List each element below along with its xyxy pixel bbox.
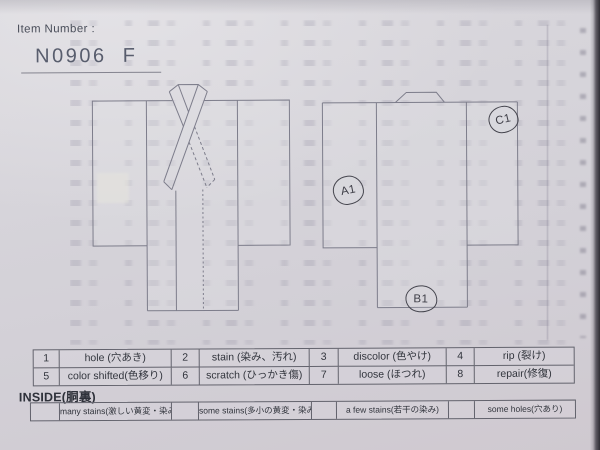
inside-checkbox-cell: [449, 401, 475, 418]
inside-option-cell: many stains(激しい黄変・染み): [60, 403, 172, 421]
defect-label-cell: rip (裂け): [475, 348, 574, 367]
photo-top-shade: [0, 0, 600, 14]
defect-num-cell: 4: [447, 348, 475, 366]
defect-label-cell: repair(修復): [475, 366, 574, 384]
defect-code-table: 1 hole (穴あき) 2 stain (染み、汚れ) 3 discolor …: [33, 347, 575, 387]
defect-label-cell: scratch (ひっかき傷): [200, 367, 310, 385]
defect-num-cell: 2: [172, 350, 200, 368]
defect-num-cell: 7: [310, 367, 339, 384]
defect-num-cell: 3: [310, 349, 339, 367]
inside-checkbox-cell: [172, 403, 199, 420]
inside-option-cell: a few stains(若干の染み): [337, 401, 449, 419]
defect-label-cell: loose (ほつれ): [339, 366, 447, 384]
marker-b1-label: B1: [414, 293, 429, 305]
defect-num-cell: 8: [447, 366, 475, 383]
inside-checkbox-cell: [312, 402, 337, 419]
inside-option-cell: some stains(多小の黄変・染み): [199, 402, 312, 420]
inside-condition-table: many stains(激しい黄変・染み) some stains(多小の黄変・…: [30, 400, 576, 422]
inside-option-cell: some holes(穴あり): [475, 401, 575, 419]
marker-a1-label: A1: [340, 183, 357, 198]
defect-num-cell: 1: [34, 350, 60, 368]
photo-right-edge: [590, 0, 600, 450]
defect-num-cell: 6: [172, 368, 200, 385]
defect-label-cell: color shifted(色移り): [60, 368, 172, 386]
inside-checkbox-cell: [31, 403, 60, 420]
defect-num-cell: 5: [34, 368, 60, 385]
marker-c1-label: C1: [494, 112, 512, 127]
defect-label-cell: stain (染み、汚れ): [200, 349, 310, 368]
kimono-front-diagram: [92, 84, 290, 311]
defect-label-cell: discolor (色やけ): [339, 348, 447, 367]
photographed-inspection-sheet: Item Number : N0906 F: [0, 0, 600, 450]
defect-label-cell: hole (穴あき): [60, 350, 172, 369]
